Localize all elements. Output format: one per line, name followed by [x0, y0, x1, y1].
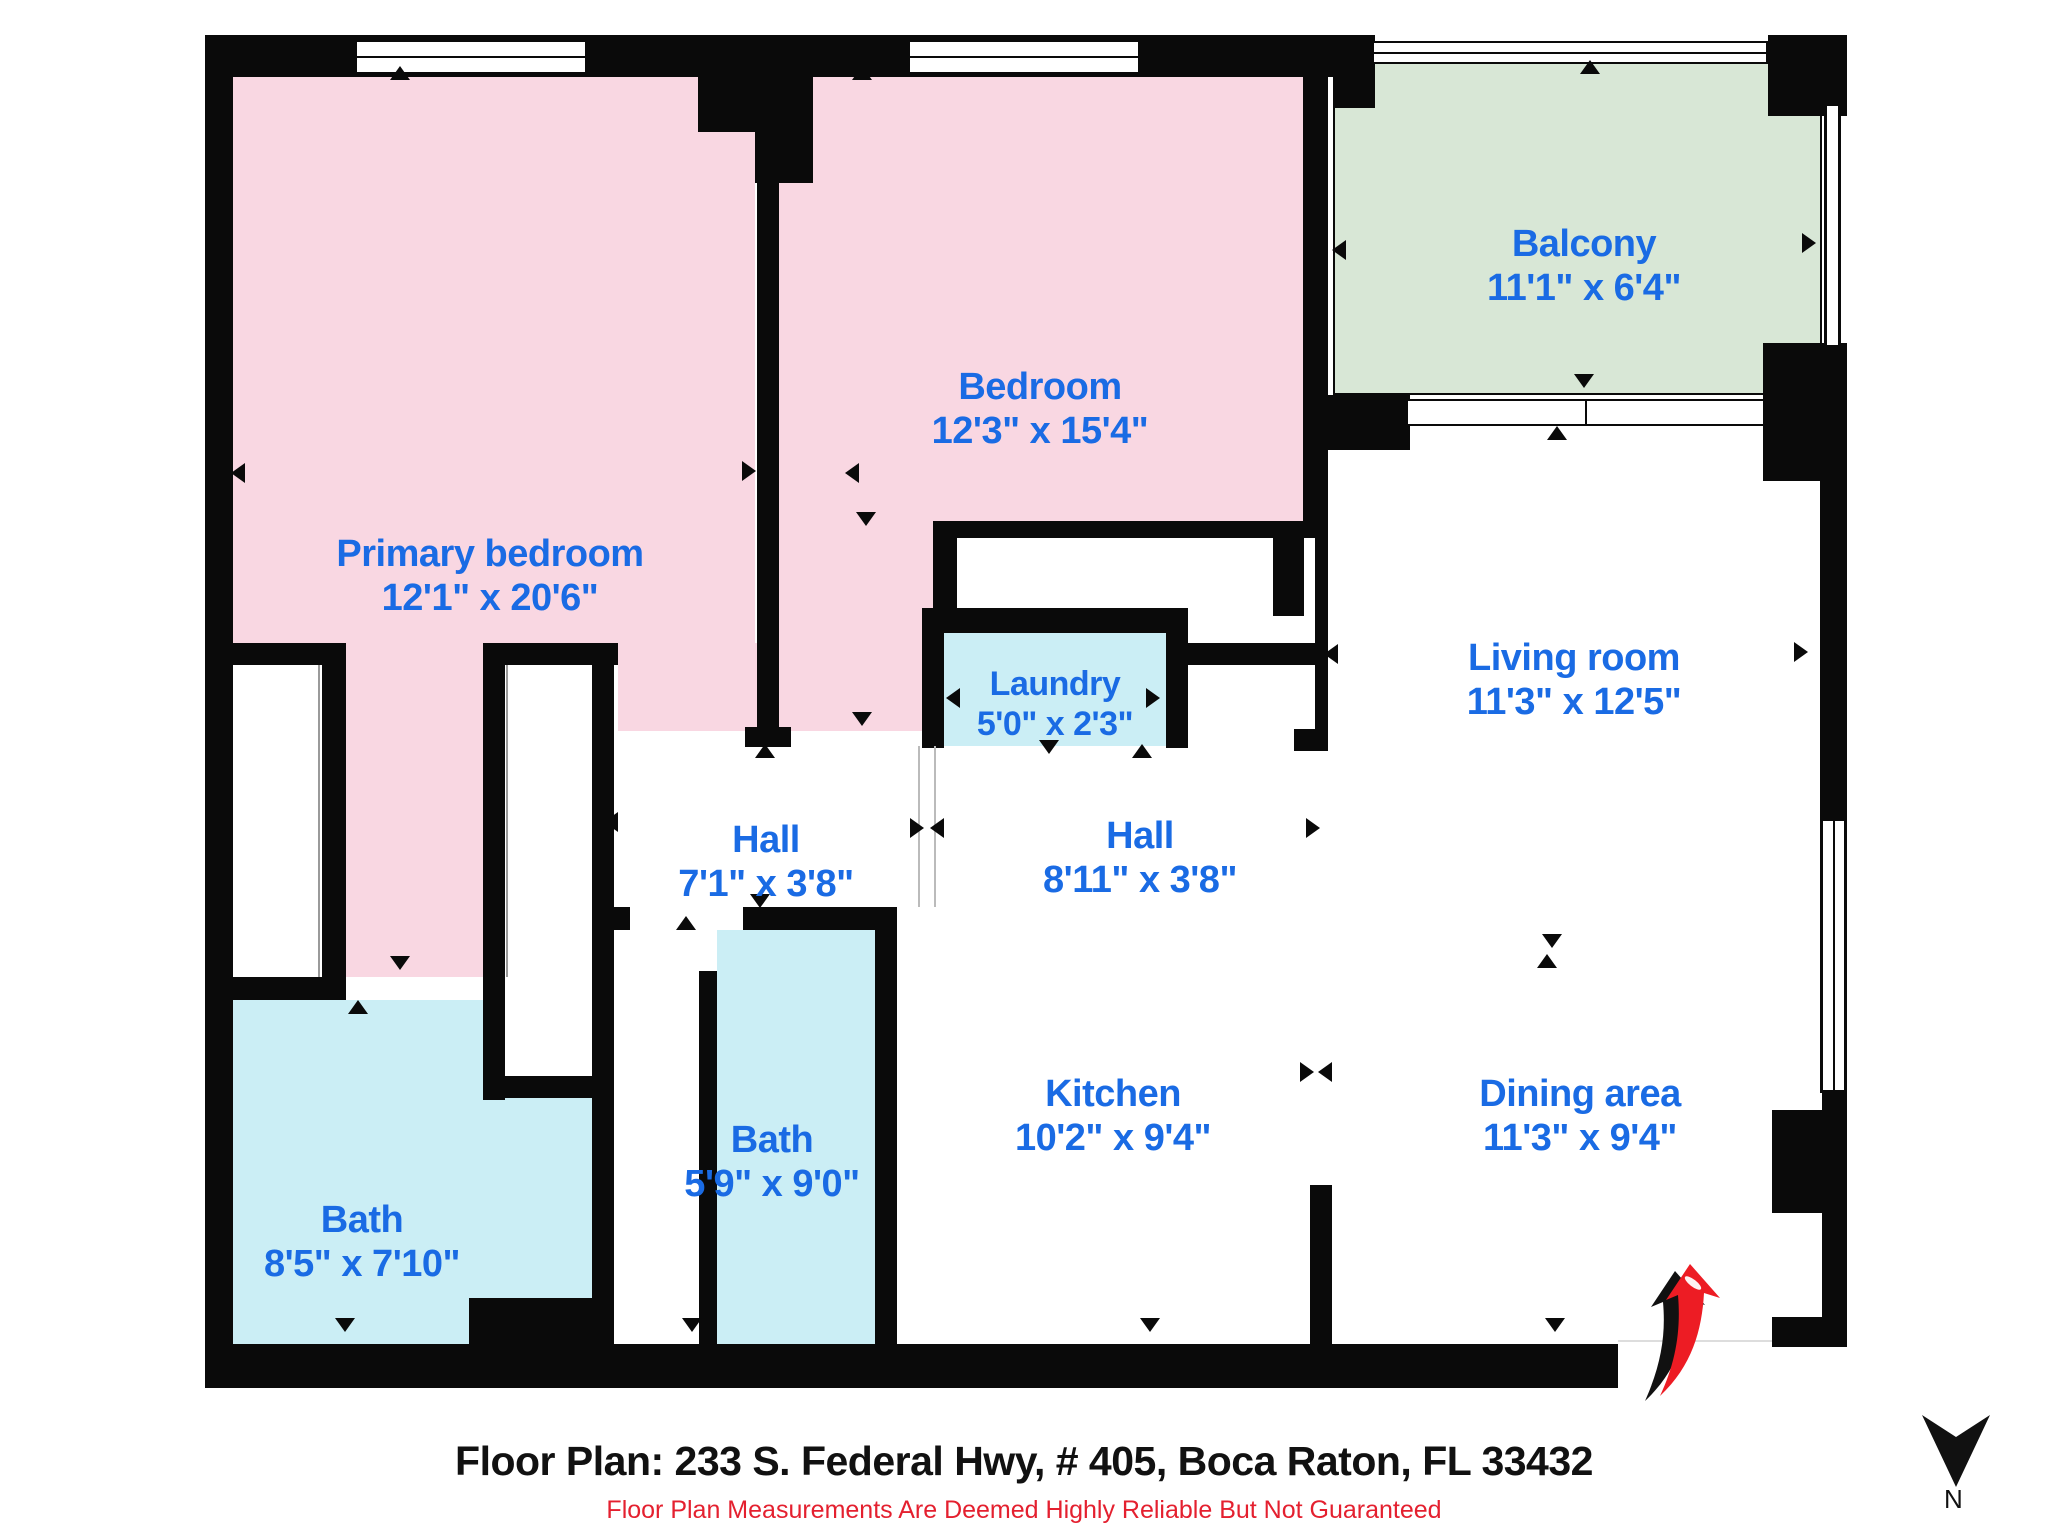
- wall: [743, 907, 897, 930]
- door-marker: [1306, 818, 1320, 838]
- room-label-kitchen: Kitchen 10'2" x 9'4": [1015, 1072, 1211, 1160]
- wall: [1273, 521, 1304, 616]
- closet-door-line: [506, 665, 508, 977]
- door-marker: [390, 66, 410, 80]
- door-marker: [755, 744, 775, 758]
- door-marker: [852, 66, 872, 80]
- room-dims: 5'9" x 9'0": [684, 1162, 859, 1206]
- wall: [469, 1298, 599, 1344]
- window: [907, 39, 1141, 75]
- room-name: Balcony: [1487, 222, 1681, 266]
- room-name: Kitchen: [1015, 1072, 1211, 1116]
- wall: [1820, 481, 1847, 821]
- door-marker: [1542, 934, 1562, 948]
- door-marker: [1545, 1318, 1565, 1332]
- door-marker: [335, 1318, 355, 1332]
- wall: [1310, 1185, 1332, 1388]
- wall: [1294, 729, 1328, 751]
- wall: [933, 521, 957, 616]
- door-marker: [946, 688, 960, 708]
- door-marker: [1580, 60, 1600, 74]
- wall: [227, 977, 346, 1000]
- door-marker: [1794, 1118, 1808, 1138]
- wall: [1772, 1317, 1847, 1347]
- door-marker: [1318, 1062, 1332, 1082]
- wall: [1763, 343, 1847, 481]
- door-marker: [1324, 644, 1338, 664]
- door-marker: [1140, 1318, 1160, 1332]
- balcony-railing: [1824, 106, 1841, 345]
- window: [1820, 818, 1847, 1093]
- wall: [1303, 35, 1328, 537]
- room-label-dining-area: Dining area 11'3" x 9'4": [1479, 1072, 1680, 1160]
- door-marker: [1332, 240, 1346, 260]
- door-marker: [1300, 1062, 1314, 1082]
- door-marker: [231, 463, 245, 483]
- door-marker: [1537, 954, 1557, 968]
- room-label-bath-2: Bath 5'9" x 9'0": [684, 1118, 859, 1206]
- room-name: Laundry: [977, 664, 1133, 704]
- room-name: Bath: [264, 1198, 460, 1242]
- room-label-bedroom: Bedroom 12'3" x 15'4": [932, 365, 1149, 453]
- wall: [205, 35, 233, 1388]
- room-dims: 12'3" x 15'4": [932, 409, 1149, 453]
- room-label-balcony: Balcony 11'1" x 6'4": [1487, 222, 1681, 310]
- door-marker: [1802, 233, 1816, 253]
- wall: [933, 521, 1327, 538]
- door-marker: [1574, 374, 1594, 388]
- room-name: Hall: [1043, 814, 1237, 858]
- room-name: Dining area: [1479, 1072, 1680, 1116]
- room-name: Living room: [1467, 636, 1682, 680]
- window: [1372, 41, 1768, 64]
- door-marker: [856, 512, 876, 526]
- room-label-hall-1: Hall 7'1" x 3'8": [678, 818, 853, 906]
- wall: [1333, 35, 1375, 108]
- room-name: Bedroom: [932, 365, 1149, 409]
- door-marker: [676, 916, 696, 930]
- wall: [1188, 643, 1327, 665]
- sliding-door: [1408, 399, 1763, 426]
- door-marker: [742, 461, 756, 481]
- room-floor-primary-bedroom: [618, 643, 757, 731]
- room-dims: 10'2" x 9'4": [1015, 1116, 1211, 1160]
- entrance-arrow-icon: [1638, 1262, 1738, 1402]
- wall: [322, 643, 346, 1000]
- wall: [592, 643, 614, 1344]
- door-marker: [1132, 744, 1152, 758]
- room-label-living-room: Living room 11'3" x 12'5": [1467, 636, 1682, 724]
- room-label-laundry: Laundry 5'0" x 2'3": [977, 664, 1133, 744]
- room-label-primary-bedroom: Primary bedroom 12'1" x 20'6": [336, 532, 643, 620]
- door-marker: [1794, 642, 1808, 662]
- room-dims: 8'11" x 3'8": [1043, 858, 1237, 902]
- door-marker: [1039, 610, 1059, 624]
- door-marker: [348, 1000, 368, 1014]
- door-marker: [390, 956, 410, 970]
- room-dims: 12'1" x 20'6": [336, 576, 643, 620]
- room-dims: 5'0" x 2'3": [977, 704, 1133, 744]
- room-dims: 11'1" x 6'4": [1487, 266, 1681, 310]
- wall: [483, 643, 505, 1100]
- door-marker: [604, 812, 618, 832]
- room-dims: 11'3" x 9'4": [1479, 1116, 1680, 1160]
- room-label-hall-2: Hall 8'11" x 3'8": [1043, 814, 1237, 902]
- door-marker: [1146, 688, 1160, 708]
- door-marker: [845, 463, 859, 483]
- wall: [205, 1344, 1618, 1388]
- wall: [1822, 1093, 1847, 1345]
- room-name: Primary bedroom: [336, 532, 643, 576]
- door-marker: [1547, 426, 1567, 440]
- wall: [1768, 35, 1847, 116]
- floor-plan: Primary bedroom 12'1" x 20'6" Bedroom 12…: [0, 0, 2048, 1536]
- room-floor-bedroom: [779, 77, 1303, 526]
- room-floor-primary-bedroom: [345, 643, 483, 977]
- wall: [483, 1076, 614, 1098]
- wall: [875, 907, 897, 1344]
- room-dims: 11'3" x 12'5": [1467, 680, 1682, 724]
- room-label-bath-1: Bath 8'5" x 7'10": [264, 1198, 460, 1286]
- room-dims: 7'1" x 3'8": [678, 862, 853, 906]
- room-name: Bath: [684, 1118, 859, 1162]
- door-marker: [910, 818, 924, 838]
- wall: [757, 77, 779, 729]
- room-floor-bedroom: [779, 526, 933, 731]
- door-marker: [930, 818, 944, 838]
- wall: [1328, 395, 1410, 450]
- footer-disclaimer: Floor Plan Measurements Are Deemed Highl…: [0, 1496, 2048, 1525]
- closet-door-line: [318, 665, 320, 977]
- door-marker: [852, 712, 872, 726]
- room-name: Hall: [678, 818, 853, 862]
- door-marker: [682, 1318, 702, 1332]
- wall: [592, 907, 630, 930]
- room-dims: 8'5" x 7'10": [264, 1242, 460, 1286]
- wall: [922, 608, 944, 748]
- footer-address: Floor Plan: 233 S. Federal Hwy, # 405, B…: [0, 1438, 2048, 1485]
- wall: [1166, 608, 1188, 748]
